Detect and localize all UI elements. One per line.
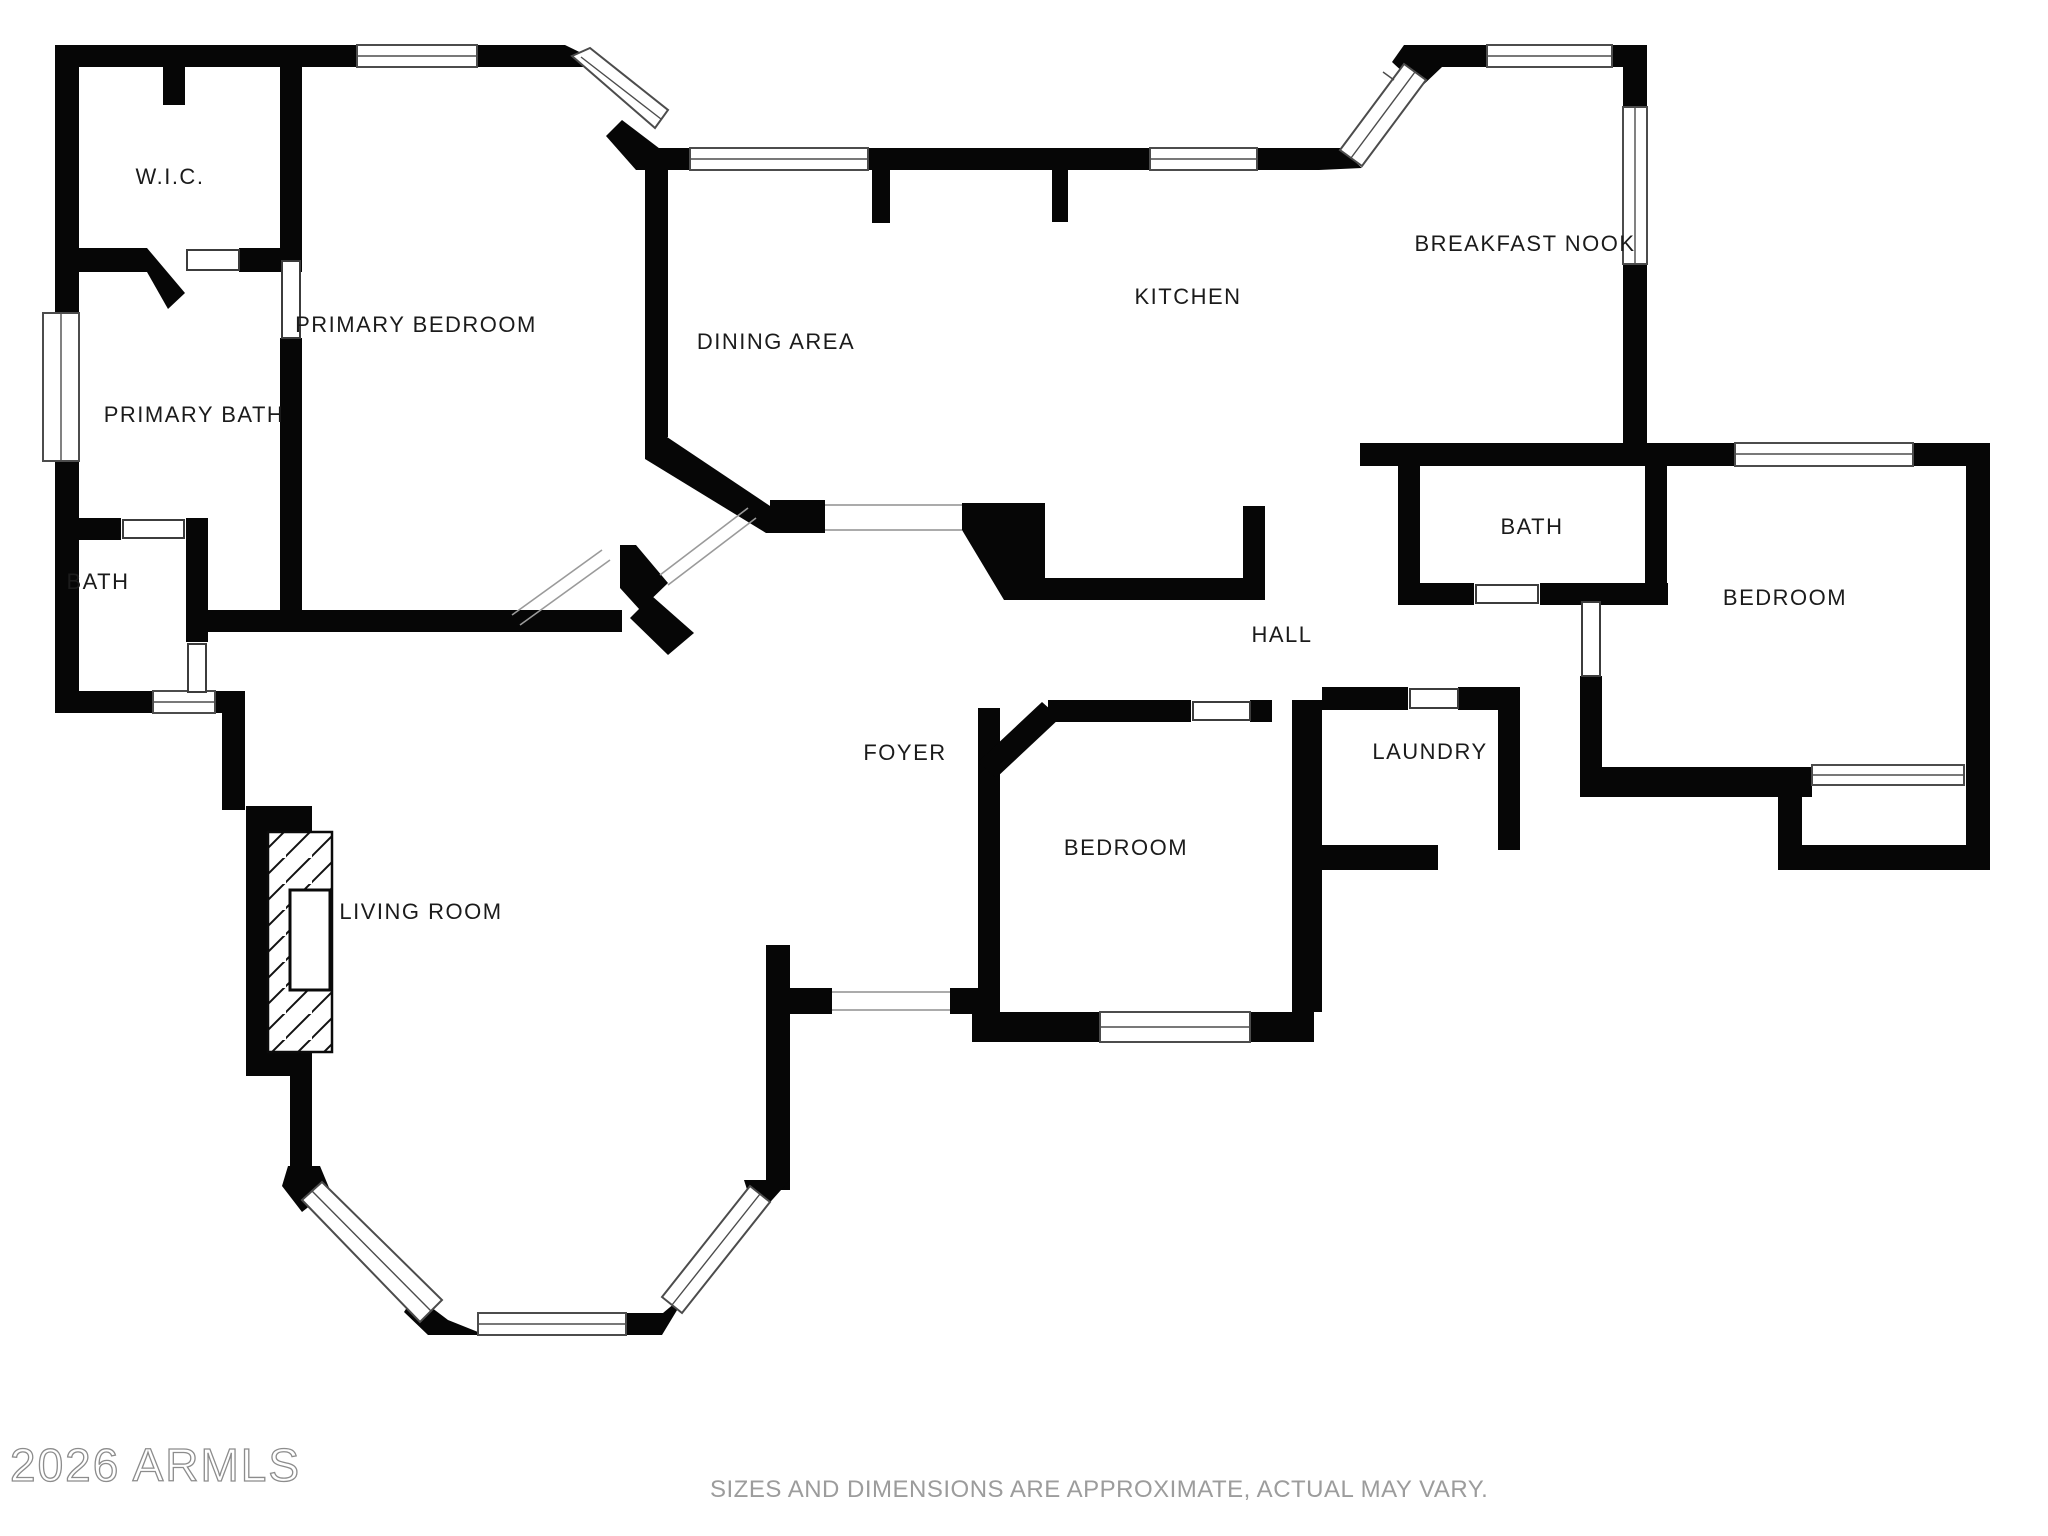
room-label-primary-bedroom: PRIMARY BEDROOM — [295, 312, 537, 337]
room-label-hall: HALL — [1251, 622, 1312, 647]
room-label-foyer: FOYER — [863, 740, 946, 765]
room-breakfast-nook — [1360, 67, 1623, 446]
fireplace — [246, 806, 332, 1076]
room-regions — [79, 67, 1966, 1292]
room-label-bath-right: BATH — [1500, 514, 1563, 539]
room-bedroom-right — [1615, 466, 1966, 767]
page: { "colors": { "wall": "#060606", "backgr… — [0, 0, 2048, 1536]
room-label-primary-bath: PRIMARY BATH — [104, 402, 285, 427]
window — [1812, 765, 1964, 785]
room-laundry — [1344, 710, 1498, 845]
window — [153, 691, 215, 713]
room-label-wic: W.I.C. — [136, 164, 205, 189]
room-label-bedroom-right: BEDROOM — [1723, 585, 1847, 610]
door-bath-left-top — [123, 520, 184, 538]
window — [43, 313, 79, 461]
window — [1487, 45, 1612, 67]
window — [357, 45, 477, 67]
door-bedroom-center — [1193, 702, 1250, 720]
room-label-bedroom-center: BEDROOM — [1064, 835, 1188, 860]
room-label-living-room: LIVING ROOM — [339, 899, 502, 924]
disclaimer: SIZES AND DIMENSIONS ARE APPROXIMATE, AC… — [710, 1476, 1488, 1503]
door-laundry — [1410, 689, 1458, 708]
room-label-bath-left: BATH — [66, 569, 129, 594]
window — [1100, 1012, 1250, 1042]
window — [1735, 443, 1913, 466]
door-wic — [187, 250, 239, 270]
room-label-dining-area: DINING AREA — [697, 329, 855, 354]
window — [478, 1313, 626, 1335]
floor-plan-canvas: W.I.C. PRIMARY BEDROOM PRIMARY BATH BATH… — [0, 0, 2048, 1536]
door-bedroom-right — [1582, 602, 1600, 676]
window — [690, 148, 868, 170]
room-label-kitchen: KITCHEN — [1134, 284, 1241, 309]
window — [1150, 148, 1257, 170]
fireplace-firebox — [290, 890, 330, 990]
room-bedroom-center — [1000, 722, 1292, 1012]
door-bath-left-side — [188, 644, 206, 692]
room-label-laundry: LAUNDRY — [1372, 739, 1487, 764]
room-label-breakfast-nook: BREAKFAST NOOK — [1414, 231, 1635, 256]
room-bath-left — [79, 540, 186, 691]
room-primary-bedroom — [302, 67, 645, 610]
watermark: 2026 ARMLS — [10, 1439, 301, 1491]
room-primary-bath — [79, 272, 280, 518]
door-bath-right — [1476, 585, 1538, 603]
